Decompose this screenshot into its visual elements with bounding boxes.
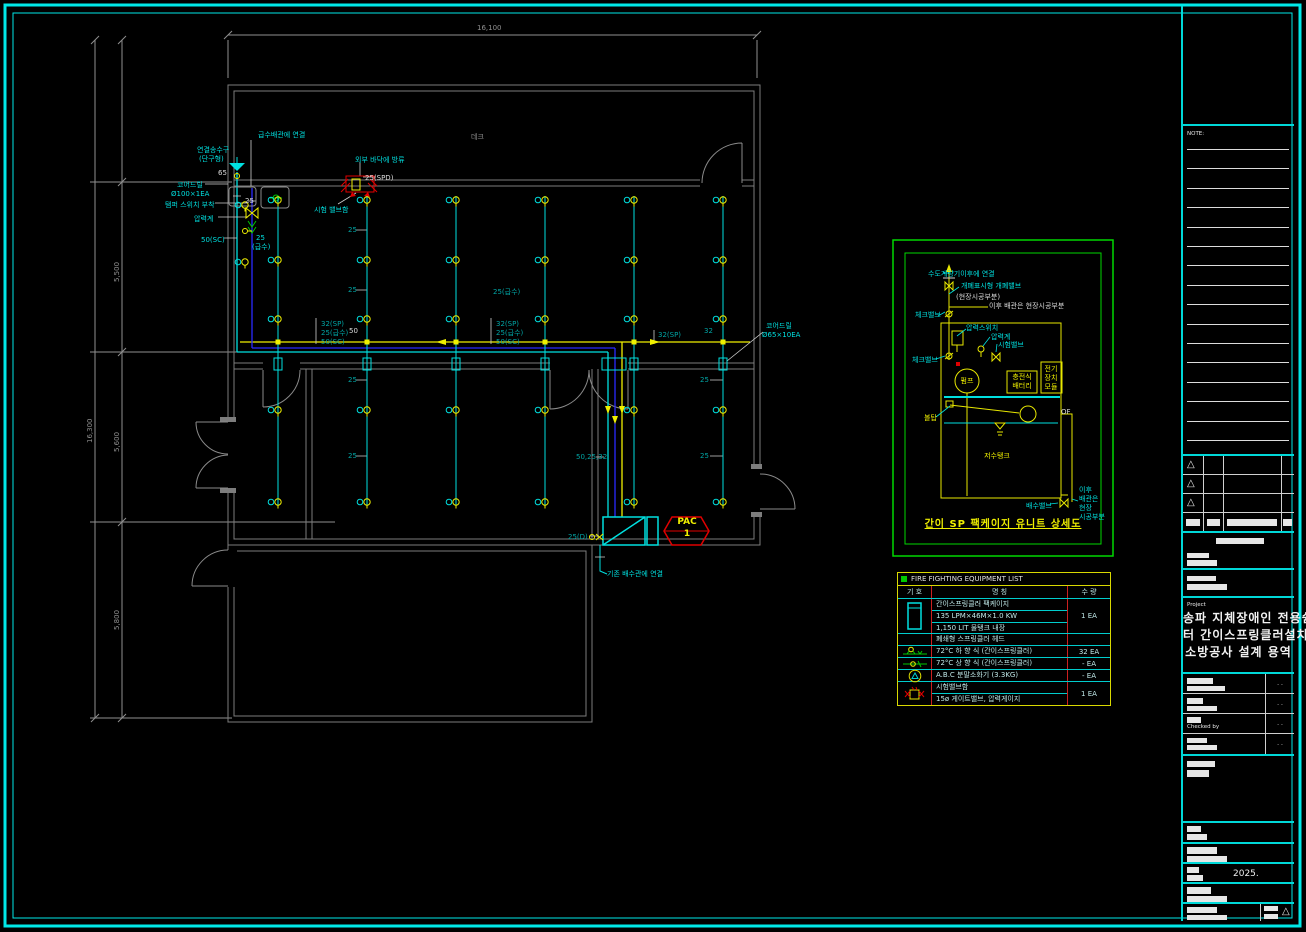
door-jambs	[220, 417, 762, 517]
equipment-name-line: 시험밸브함	[932, 682, 1067, 694]
info-row-3	[1183, 884, 1294, 904]
sprinkler-head-icon	[713, 499, 726, 509]
sprinkler-head-icon	[357, 407, 370, 417]
pendent-head-icon	[901, 646, 929, 657]
drain-valve-icon	[1060, 499, 1068, 507]
sprinkler-head-icon	[268, 499, 281, 509]
sprinkler-head-icon	[713, 316, 726, 326]
sprinkler-head-icon	[535, 197, 548, 207]
project-title-line3: 소방공사 설계 용역	[1183, 645, 1294, 660]
revision-table: △ △ △	[1183, 456, 1294, 533]
equipment-name-cell: A.B.C 분말소화기 (3.3KG)	[932, 670, 1068, 681]
equipment-row: 폐쇄형 스프링클러 헤드	[898, 634, 1110, 646]
sprinkler-head-icon	[268, 316, 281, 326]
sprinkler-head-icon	[446, 316, 459, 326]
note-section: NOTE:	[1183, 126, 1294, 456]
project-label: Project	[1187, 602, 1206, 608]
sprinkler-head-icon	[535, 257, 548, 267]
client-row	[1183, 570, 1294, 598]
siamese-connection-icon	[229, 163, 245, 171]
sprinkler-head-icon	[713, 407, 726, 417]
tee-fitting	[276, 340, 281, 345]
revision-triangle-icon: △	[1187, 479, 1195, 489]
note-label: NOTE:	[1187, 131, 1204, 137]
project-title-line1: 송파 지체장애인 전용쉼	[1183, 611, 1294, 626]
sprinkler-head-icon	[357, 499, 370, 509]
equipment-name-line: 72°C 상 향 식 (간이스프링클러)	[932, 658, 1067, 669]
upright-symbol-cell	[898, 658, 932, 669]
equipment-name-line: A.B.C 분말소화기 (3.3KG)	[932, 670, 1067, 681]
cad-canvas	[0, 0, 1306, 932]
equipment-row: 간이스프링클러 팩케이지135 LPM×46M×1.0 KW1,150 LIT …	[898, 599, 1110, 634]
tee-fitting	[543, 340, 548, 345]
equipment-row: 시험밸브함15ø 게이트밸브, 압력게이지1 EA	[898, 682, 1110, 705]
sprinkler-head-icon	[535, 407, 548, 417]
company-section	[1183, 756, 1294, 823]
equipment-qty-cell: 1 EA	[1068, 599, 1110, 633]
sprinkler-head-icon	[357, 197, 370, 207]
title-block-logo-box	[1183, 8, 1294, 126]
equipment-qty-cell: - EA	[1068, 658, 1110, 669]
tee-fitting	[454, 340, 459, 345]
equipment-name-line: 폐쇄형 스프링클러 헤드	[932, 634, 1067, 645]
upright-head-icon	[901, 658, 929, 669]
title-block: NOTE: △ △ △ Project 송파 지체장애인 전용쉼 터 간이스프링…	[1181, 6, 1296, 921]
sprinkler-head-icon	[535, 316, 548, 326]
sprinkler-head-icon	[268, 407, 281, 417]
sprinkler-head-icon	[624, 407, 637, 417]
blank-symbol-cell	[898, 634, 932, 645]
extinguisher-icon	[907, 669, 923, 683]
equipment-table-header: 기 호 명 칭 수 량	[898, 586, 1110, 599]
sheet-border	[5, 5, 1300, 926]
tee-fitting	[721, 340, 726, 345]
main-pipes	[237, 172, 750, 574]
pressure-gauge-icon	[978, 346, 984, 352]
col-name: 명 칭	[932, 586, 1068, 598]
pump-icon	[955, 369, 979, 393]
equipment-name-line: 135 LPM×46M×1.0 KW	[932, 611, 1067, 623]
equipment-qty-cell: 1 EA	[1068, 682, 1110, 705]
sprinkler-head-icon	[624, 197, 637, 207]
equipment-name-line: 1,150 LIT 물탱크 내장	[932, 623, 1067, 633]
package-unit-icon	[905, 601, 925, 631]
test-valve-box-icon	[902, 686, 928, 701]
equipment-table-title-row: FIRE FIGHTING EQUIPMENT LIST	[898, 573, 1110, 586]
col-symbol: 기 호	[898, 586, 932, 598]
checked-by-label: Checked by	[1187, 724, 1219, 730]
project-section: Project 송파 지체장애인 전용쉼 터 간이스프링클러설치 소방공사 설계…	[1183, 598, 1294, 674]
overflow-pipe	[1061, 414, 1072, 502]
electric-module-box	[1041, 362, 1062, 393]
equipment-name-cell: 72°C 하 향 식 (간이스프링클러)	[932, 646, 1068, 657]
float-arm	[950, 405, 1019, 413]
equipment-name-cell: 간이스프링클러 팩케이지135 LPM×46M×1.0 KW1,150 LIT …	[932, 599, 1068, 633]
equipment-qty-cell	[1068, 634, 1110, 645]
signature-value: . .	[1267, 700, 1293, 707]
sprinkler-head-icon	[713, 257, 726, 267]
sprinkler-head-icon	[624, 257, 637, 267]
revision-triangle-icon: △	[1187, 460, 1195, 470]
riser-assembly	[229, 157, 289, 234]
signature-value: . .	[1267, 740, 1293, 747]
revision-triangle-icon: △	[1282, 907, 1290, 917]
equipment-name-line: 간이스프링클러 팩케이지	[932, 599, 1067, 611]
sprinkler-head-icon	[268, 257, 281, 267]
sheet-no-row: △	[1183, 904, 1294, 921]
pressure-gauge-icon	[243, 229, 248, 234]
float-ball-icon	[1020, 406, 1036, 422]
test-valve-icon	[992, 353, 1000, 361]
signature-value: . .	[1267, 720, 1293, 727]
equipment-table-title: FIRE FIGHTING EQUIPMENT LIST	[911, 575, 1023, 583]
equipment-name-line: 15ø 게이트밸브, 압력게이지	[932, 694, 1067, 705]
sprinkler-head-icon	[624, 499, 637, 509]
sprinkler-head-icon	[446, 499, 459, 509]
tee-fitting	[365, 340, 370, 345]
info-row-2	[1183, 844, 1294, 864]
green-square-icon	[901, 576, 907, 582]
sprinkler-head-icon	[357, 257, 370, 267]
detail-drawing	[936, 264, 1078, 507]
equipment-name-cell: 폐쇄형 스프링클러 헤드	[932, 634, 1068, 645]
sprinkler-head-icon	[446, 257, 459, 267]
sprinkler-head-icon	[624, 316, 637, 326]
equipment-qty-cell: - EA	[1068, 670, 1110, 681]
equipment-name-cell: 72°C 상 향 식 (간이스프링클러)	[932, 658, 1068, 669]
equipment-row: 72°C 하 향 식 (간이스프링클러)32 EA	[898, 646, 1110, 658]
equipment-qty-cell: 32 EA	[1068, 646, 1110, 657]
stamp-strip	[1183, 533, 1294, 570]
package-unit	[590, 517, 659, 545]
sprinkler-head-icon	[535, 499, 548, 509]
sprinkler-head-icon	[446, 407, 459, 417]
date-text: 2025.	[1233, 869, 1259, 879]
info-row-1	[1183, 823, 1294, 844]
walls	[228, 85, 760, 722]
detail-title: 간이 SP 팩케이지 유니트 상세도	[893, 515, 1113, 530]
equipment-name-line: 72°C 하 향 식 (간이스프링클러)	[932, 646, 1067, 657]
pac-tag	[664, 517, 709, 545]
sprinkler-head-icon	[357, 316, 370, 326]
equipment-table: FIRE FIGHTING EQUIPMENT LIST 기 호 명 칭 수 량…	[897, 572, 1111, 706]
drawing-sheet: 급수배관에 연결연결송수구(단구형)65코어드릴Ø100×1EA탬퍼 스위치 부…	[0, 0, 1306, 932]
battery-box	[1007, 371, 1037, 393]
equipment-row: A.B.C 분말소화기 (3.3KG)- EA	[898, 670, 1110, 682]
equipment-row: 72°C 상 향 식 (간이스프링클러)- EA	[898, 658, 1110, 670]
sprinkler-head-icon	[446, 197, 459, 207]
package-symbol-cell	[898, 599, 932, 633]
dimension-lines	[90, 31, 761, 722]
revision-triangle-icon: △	[1187, 498, 1195, 508]
equipment-rows: 간이스프링클러 팩케이지135 LPM×46M×1.0 KW1,150 LIT …	[898, 599, 1110, 705]
testvalve-symbol-cell	[898, 682, 932, 705]
project-title-line2: 터 간이스프링클러설치	[1183, 628, 1294, 643]
sprinkler-head-icon	[713, 197, 726, 207]
signature-rows: . . . . Checked by . . . .	[1183, 674, 1294, 756]
water-level-icon	[995, 423, 1005, 429]
col-qty: 수 량	[1068, 586, 1110, 598]
date-row: 2025.	[1183, 864, 1294, 884]
extinguisher-symbol-cell	[898, 670, 932, 681]
signature-value: . .	[1267, 680, 1293, 687]
equipment-name-cell: 시험밸브함15ø 게이트밸브, 압력게이지	[932, 682, 1068, 705]
tee-fitting	[632, 340, 637, 345]
pendent-symbol-cell	[898, 646, 932, 657]
